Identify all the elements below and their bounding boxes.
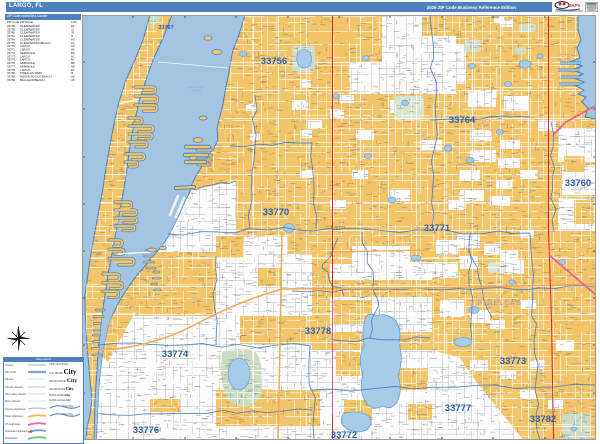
- svg-text:33786: 33786: [7, 77, 15, 81]
- svg-text:CLEARWATER: CLEARWATER: [187, 85, 205, 89]
- svg-text:33773: 33773: [500, 356, 526, 367]
- svg-text:33771: 33771: [424, 223, 451, 234]
- svg-text:33767: 33767: [158, 25, 173, 31]
- svg-text:State Hwy: State Hwy: [62, 413, 74, 416]
- svg-text:BELLEAIR BEACH: BELLEAIR BEACH: [20, 77, 45, 81]
- svg-text:33764: 33764: [449, 115, 476, 126]
- svg-text:A5: A5: [71, 77, 75, 81]
- svg-text:33770: 33770: [263, 207, 289, 218]
- svg-text:Largo: Largo: [331, 225, 345, 231]
- svg-text:MAPS: MAPS: [568, 3, 580, 8]
- svg-text:33776: 33776: [133, 425, 159, 436]
- svg-text:33756: 33756: [261, 56, 287, 67]
- svg-text:33777: 33777: [445, 403, 471, 414]
- svg-text:Inter Hwy: Inter Hwy: [63, 405, 74, 408]
- svg-text:33774: 33774: [162, 349, 189, 360]
- svg-text:33782: 33782: [530, 414, 556, 425]
- svg-text:33772: 33772: [331, 430, 357, 440]
- svg-text:PINELLAS: PINELLAS: [478, 300, 523, 307]
- svg-text:HARBOR: HARBOR: [190, 89, 201, 93]
- svg-text:33778: 33778: [305, 326, 331, 337]
- svg-text:33760: 33760: [565, 178, 591, 189]
